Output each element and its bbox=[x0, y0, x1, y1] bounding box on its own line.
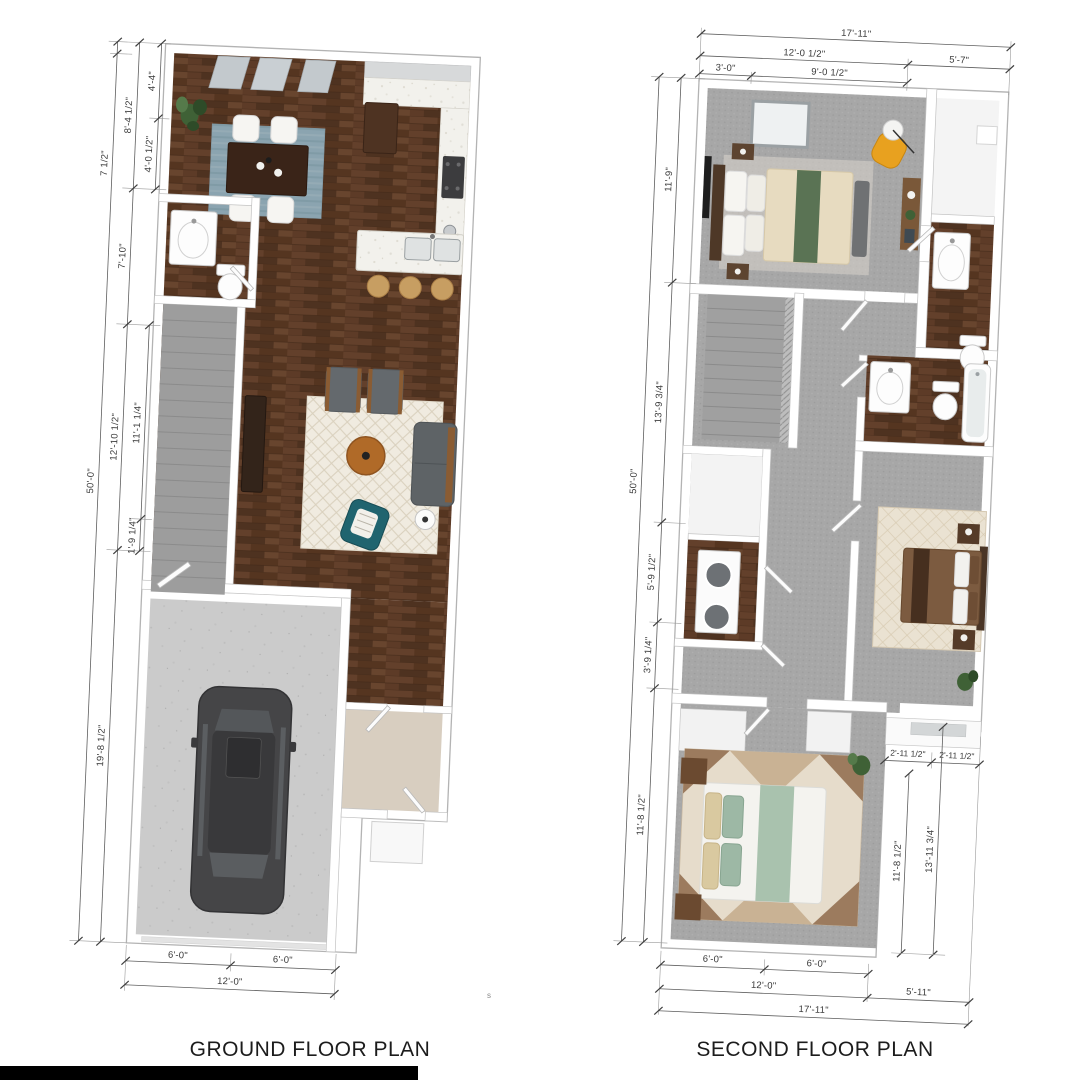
dim-label: 17'-11" bbox=[841, 28, 872, 40]
dim-label: 12'-0" bbox=[751, 980, 777, 992]
dim-label: 5'-9 1/2" bbox=[646, 554, 659, 591]
dim-label: 11'-8 1/2" bbox=[891, 840, 904, 882]
dim-label: 17'-11" bbox=[798, 1004, 829, 1016]
dim-label: 9'-0 1/2" bbox=[811, 67, 848, 80]
dim-label: 19'-8 1/2" bbox=[95, 724, 108, 766]
hall-hardwood-floor bbox=[346, 598, 447, 706]
bedroom3-bed bbox=[699, 783, 826, 904]
dim-label: 4'-4" bbox=[147, 71, 159, 91]
dim-label: 3'-0" bbox=[715, 62, 735, 74]
car bbox=[184, 686, 299, 915]
closet-floor bbox=[931, 98, 999, 217]
stray-mark: s bbox=[487, 991, 491, 1000]
balcony-ledge bbox=[885, 717, 981, 748]
dim-label: 11'-8 1/2" bbox=[635, 794, 648, 836]
dim-label: 6'-0" bbox=[703, 954, 723, 966]
dim-label: 12'-0" bbox=[217, 976, 243, 988]
dim-label: 4'-0 1/2" bbox=[143, 136, 156, 173]
floorplan-sheet: 7 1/2" 50'-0" 8'-4 1/2" 7'-10" 12'-10 1/… bbox=[0, 0, 1080, 1080]
island-sink bbox=[433, 239, 460, 262]
ground-floor-title: GROUND FLOOR PLAN bbox=[130, 1038, 490, 1062]
wall bbox=[346, 702, 387, 711]
washer-dryer-stack bbox=[695, 550, 741, 634]
wall bbox=[425, 812, 447, 822]
ottoman bbox=[680, 758, 707, 785]
entry-floor bbox=[341, 709, 442, 812]
master-bed bbox=[709, 164, 870, 267]
dim-label: 12'-10 1/2" bbox=[108, 413, 121, 461]
bedroom2-bed bbox=[900, 543, 988, 631]
skylight bbox=[751, 101, 809, 147]
linen-closet bbox=[688, 454, 762, 537]
toilet bbox=[933, 381, 959, 392]
bar-stool bbox=[399, 276, 422, 299]
dim-label: 6'-0" bbox=[806, 958, 826, 970]
dining-chair bbox=[232, 115, 259, 142]
armchair bbox=[367, 369, 404, 414]
porch-step bbox=[370, 821, 424, 863]
dim-label: 5'-11" bbox=[906, 987, 931, 999]
shower-shelf bbox=[977, 126, 998, 145]
staircase bbox=[151, 304, 237, 595]
wall bbox=[855, 397, 865, 441]
bar-stool bbox=[431, 278, 454, 301]
dining-table bbox=[226, 143, 308, 196]
staircase-second bbox=[701, 289, 804, 448]
dim-label: 2'-11 1/2" bbox=[890, 748, 926, 760]
sofa bbox=[411, 422, 458, 507]
dim-label: 3'-9 1/4" bbox=[642, 636, 655, 673]
dim-label: 1'-9 1/4" bbox=[126, 517, 139, 554]
dining-chair bbox=[270, 116, 297, 143]
dining-chair bbox=[267, 196, 294, 223]
dim-label: 6'-0" bbox=[273, 954, 293, 966]
dim-label: 50'-0" bbox=[628, 468, 640, 494]
dim-label: 13'-11 3/4" bbox=[924, 826, 937, 873]
wall bbox=[853, 451, 863, 501]
dim-label: 11'-1 1/4" bbox=[131, 402, 144, 444]
dim-label: 11'-9" bbox=[663, 167, 675, 192]
wall bbox=[341, 808, 387, 819]
dim-label: 2'-11 1/2" bbox=[939, 750, 975, 762]
ottoman bbox=[674, 893, 701, 920]
closet bbox=[806, 711, 852, 753]
side-table bbox=[415, 509, 436, 530]
bottom-black-bar bbox=[0, 1066, 418, 1080]
dim-label: 5'-7" bbox=[949, 55, 969, 67]
closet bbox=[679, 708, 747, 753]
dim-label: 7'-10" bbox=[117, 243, 129, 269]
dim-label: 8'-4 1/2" bbox=[123, 97, 136, 134]
stove bbox=[441, 156, 465, 199]
second-floor-plan: 17'-11" 12'-0 1/2" 5'-7" 3'-0" 9'-0 1/2"… bbox=[520, 0, 1080, 1080]
tv-console bbox=[241, 395, 266, 492]
ground-floor-plan: 7 1/2" 50'-0" 8'-4 1/2" 7'-10" 12'-10 1/… bbox=[0, 0, 540, 1080]
wall bbox=[424, 706, 452, 714]
dim-label: 50'-0" bbox=[85, 468, 97, 494]
refrigerator bbox=[363, 102, 398, 153]
second-floor-title: SECOND FLOOR PLAN bbox=[650, 1038, 980, 1062]
dim-label: 6'-0" bbox=[168, 950, 188, 962]
dim-label: 13'-9 3/4" bbox=[653, 381, 666, 423]
wall bbox=[859, 355, 867, 361]
dim-label: 7 1/2" bbox=[99, 150, 111, 176]
bathtub bbox=[962, 364, 991, 443]
dim-label: 12'-0 1/2" bbox=[783, 47, 825, 60]
armchair bbox=[325, 367, 362, 412]
island-sink bbox=[404, 237, 431, 260]
coffee-table bbox=[346, 436, 386, 476]
bar-stool bbox=[367, 275, 390, 298]
front-windows bbox=[209, 56, 336, 93]
